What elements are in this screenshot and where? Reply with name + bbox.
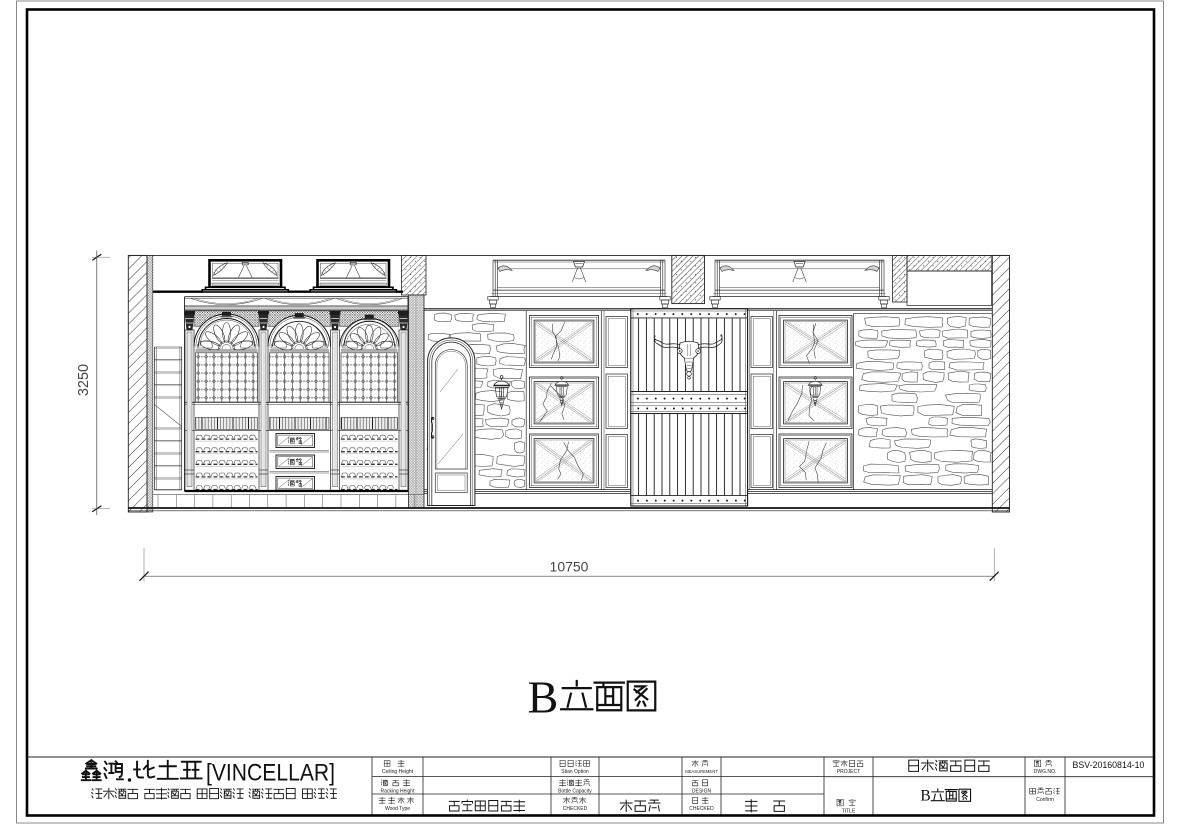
svg-text:B: B	[920, 788, 930, 805]
svg-text:Racking Height: Racking Height	[381, 789, 416, 795]
svg-text:MEASUREMENT: MEASUREMENT	[685, 769, 718, 774]
svg-text:PROJECT: PROJECT	[837, 769, 860, 775]
svg-text:DWG.NO.: DWG.NO.	[1034, 769, 1057, 775]
svg-text:CHECKED: CHECKED	[689, 806, 714, 812]
svg-text:CHECKED: CHECKED	[563, 806, 588, 812]
svg-text:DESIGN: DESIGN	[692, 789, 712, 795]
svg-text:TITLE: TITLE	[842, 808, 856, 814]
svg-text:3250: 3250	[76, 364, 92, 396]
svg-text:10750: 10750	[550, 559, 589, 575]
svg-text:Wood Type: Wood Type	[385, 806, 410, 812]
svg-text:B: B	[528, 672, 559, 723]
svg-text:Ceiling Height: Ceiling Height	[382, 769, 414, 775]
svg-text:Confirm: Confirm	[1036, 797, 1054, 803]
svg-text:Stian Option: Stian Option	[561, 769, 589, 775]
svg-text:BSV-20160814-10: BSV-20160814-10	[1073, 760, 1145, 770]
svg-text:Bottle Capacity: Bottle Capacity	[558, 789, 592, 795]
svg-text:[VINCELLAR]: [VINCELLAR]	[206, 760, 335, 787]
